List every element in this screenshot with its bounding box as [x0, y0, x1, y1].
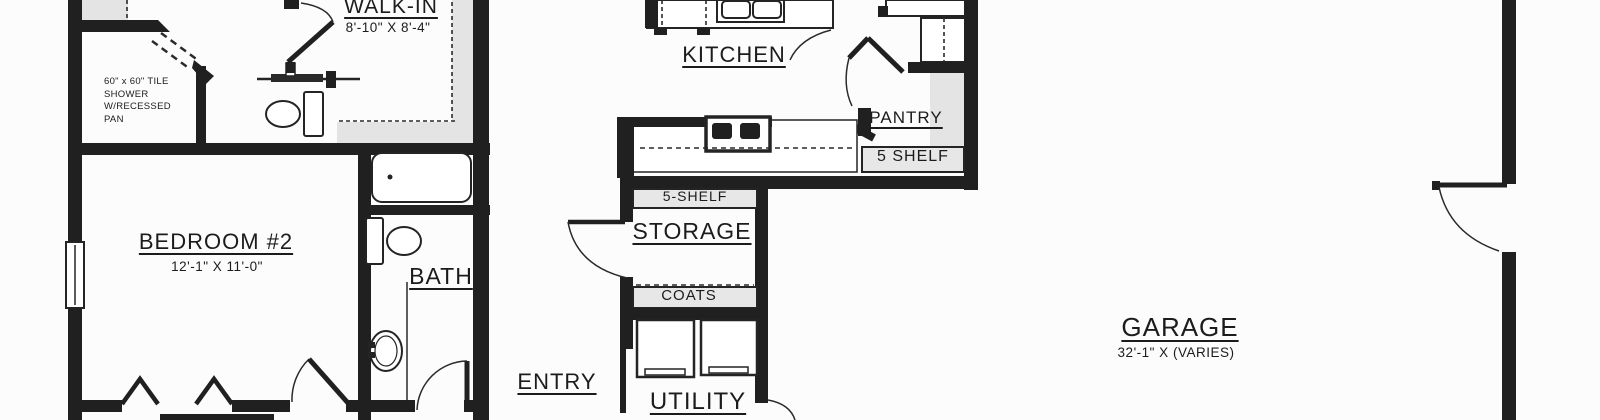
utility-label: UTILITY [650, 389, 746, 414]
garage-right-wall [1502, 0, 1516, 420]
kitchen-sink-icon [717, 0, 784, 22]
floor-plan-drawing [0, 0, 1600, 420]
garage-entry-door-swing [1432, 181, 1507, 251]
exterior-left-wall [68, 0, 82, 420]
walkin-door-swing [284, 0, 333, 73]
garage-label: GARAGE [1121, 314, 1238, 341]
utility-top-wall [620, 308, 768, 320]
bedroom-2-dims: 12'-1" X 11'-0" [171, 260, 263, 274]
dryer-icon [701, 320, 757, 375]
bathtub-icon [372, 153, 471, 202]
bath-label: BATH [409, 264, 473, 288]
coats-label: COATS [661, 288, 717, 304]
shower-note: 60" x 60" TILE SHOWER W/RECESSED PAN [104, 76, 171, 126]
bath-sink-icon [368, 331, 402, 371]
storage-shelf-label: 5-SHELF [663, 189, 728, 204]
walk-in-label: WALK-IN [344, 0, 438, 18]
entry-label: ENTRY [517, 370, 596, 393]
storage-door-swing [568, 222, 627, 278]
window-icon [66, 242, 84, 308]
bedroom-bottom-wall [82, 359, 489, 420]
toilet-icon [266, 92, 323, 136]
bath-left-wall [358, 143, 371, 420]
washer-icon [637, 320, 694, 377]
tub-wall [358, 205, 490, 215]
left-block-right-wall [473, 0, 489, 420]
kitchen-label: KITCHEN [682, 43, 786, 66]
pantry-top-wall [908, 62, 966, 73]
walk-in-dims: 8'-10" X 8'-4" [346, 21, 431, 35]
master-vanity [257, 63, 360, 88]
bedroom-2-label: BEDROOM #2 [139, 230, 293, 253]
storage-label: STORAGE [632, 219, 751, 243]
bath-toilet-icon [366, 218, 421, 264]
kitchen-counter-lower [617, 117, 857, 178]
bath-door-swing [417, 361, 467, 412]
refrigerator-icon [878, 0, 966, 62]
pantry-shelf-label: 5 SHELF [877, 149, 949, 166]
garage-dims: 32'-1" X (VARIES) [1118, 346, 1235, 360]
floor-plan: WALK-IN 8'-10" X 8'-4" KITCHEN PANTRY 5 … [0, 0, 1600, 420]
pantry-right-wall [964, 0, 978, 190]
pantry-label: PANTRY [869, 109, 942, 127]
